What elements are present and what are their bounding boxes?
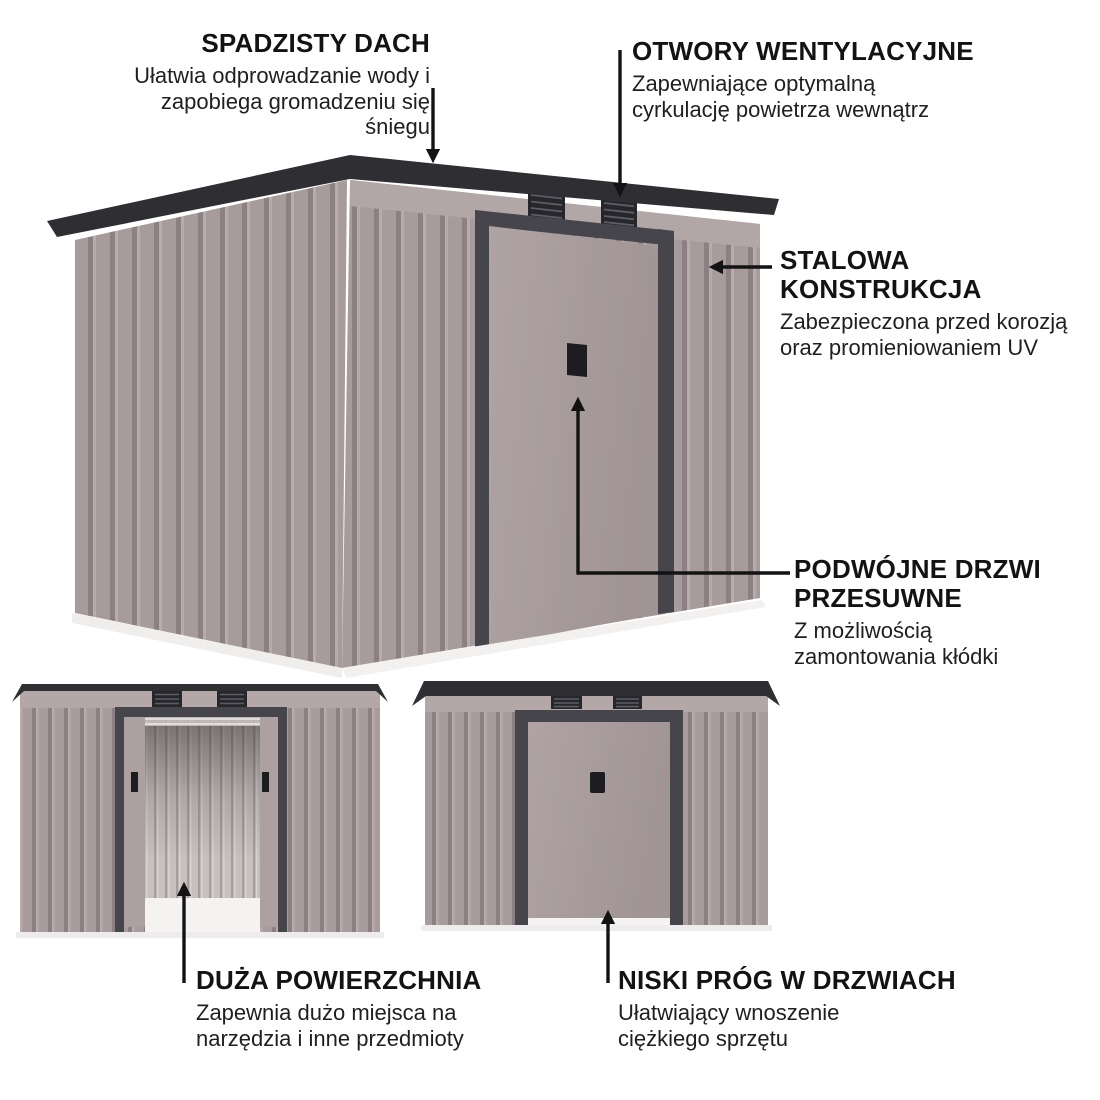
closed-shed-illustration <box>412 681 780 931</box>
closed-shed-door-handle <box>590 772 605 793</box>
annotation-sloped-roof-title: SPADZISTY DACH <box>134 29 430 58</box>
closed-shed-vent-left <box>551 695 582 709</box>
annotation-vents-title: OTWORY WENTYLACYJNE <box>632 37 974 66</box>
closed-shed-door-frame-top <box>515 710 683 722</box>
annotation-vents: OTWORY WENTYLACYJNE Zapewniające optymal… <box>632 37 974 122</box>
open-shed-vent-left <box>152 690 182 707</box>
main-shed-door-frame-right <box>658 229 674 614</box>
annotation-large-area: DUŻA POWIERZCHNIA Zapewnia dużo miejsca … <box>196 966 482 1051</box>
closed-shed-base <box>421 925 772 931</box>
main-shed-door-frame-left <box>475 210 489 648</box>
shed-illustrations <box>0 0 1100 1100</box>
open-shed-upper-band <box>20 689 380 708</box>
open-shed-door-handle-right <box>262 772 269 792</box>
annotation-large-area-body: Zapewnia dużo miejsca na narzędzia i inn… <box>196 1000 482 1051</box>
closed-shed-door-frame-right <box>670 710 683 925</box>
annotation-large-area-title: DUŻA POWIERZCHNIA <box>196 966 482 995</box>
closed-shed-door-threshold <box>528 918 670 925</box>
annotation-low-threshold-title: NISKI PRÓG W DRZWIACH <box>618 966 956 995</box>
open-shed-illustration <box>12 684 388 938</box>
closed-shed-door-panel <box>528 722 670 918</box>
annotation-vents-body: Zapewniające optymalną cyrkulację powiet… <box>632 71 974 122</box>
annotation-sloped-roof-body: Ułatwia odprowadzanie wody i zapobiega g… <box>134 63 430 140</box>
main-shed-side-wall <box>75 180 347 668</box>
annotation-steel-structure-body: Zabezpieczona przed korozją oraz promien… <box>780 309 1067 360</box>
shed-features-infographic: SPADZISTY DACH Ułatwia odprowadzanie wod… <box>0 0 1100 1100</box>
annotation-sloped-roof: SPADZISTY DACH Ułatwia odprowadzanie wod… <box>134 29 430 140</box>
open-shed-door-handle-left <box>131 772 138 792</box>
closed-shed-vent-right <box>613 695 642 709</box>
open-shed-door-panel-right <box>260 717 278 927</box>
annotation-sliding-doors-title: PODWÓJNE DRZWI PRZESUWNE <box>794 555 1041 613</box>
main-shed-illustration <box>47 155 779 678</box>
open-shed-interior-shading <box>145 713 260 898</box>
open-shed-vent-right <box>217 690 247 707</box>
annotation-low-threshold-body: Ułatwiający wnoszenie ciężkiego sprzętu <box>618 1000 956 1051</box>
closed-shed-upper-band <box>425 694 768 712</box>
open-shed-floor <box>145 898 260 932</box>
annotation-low-threshold: NISKI PRÓG W DRZWIACH Ułatwiający wnosze… <box>618 966 956 1051</box>
open-shed-base <box>16 932 384 938</box>
annotation-sliding-doors: PODWÓJNE DRZWI PRZESUWNE Z możliwością z… <box>794 555 1041 669</box>
annotation-sliding-doors-body: Z możliwością zamontowania kłódki <box>794 618 1041 669</box>
open-shed-door-panel-left <box>124 717 145 927</box>
annotation-steel-structure: STALOWA KONSTRUKCJA Zabezpieczona przed … <box>780 246 1067 360</box>
open-shed-door-frame-top <box>115 707 287 717</box>
open-shed-door-frame-left <box>115 707 124 932</box>
open-shed-door-frame-right <box>278 707 287 932</box>
main-shed-door-handle <box>567 343 587 377</box>
main-shed-door-panel <box>489 226 658 646</box>
closed-shed-door-frame-left <box>515 710 528 925</box>
annotation-steel-structure-title: STALOWA KONSTRUKCJA <box>780 246 1067 304</box>
